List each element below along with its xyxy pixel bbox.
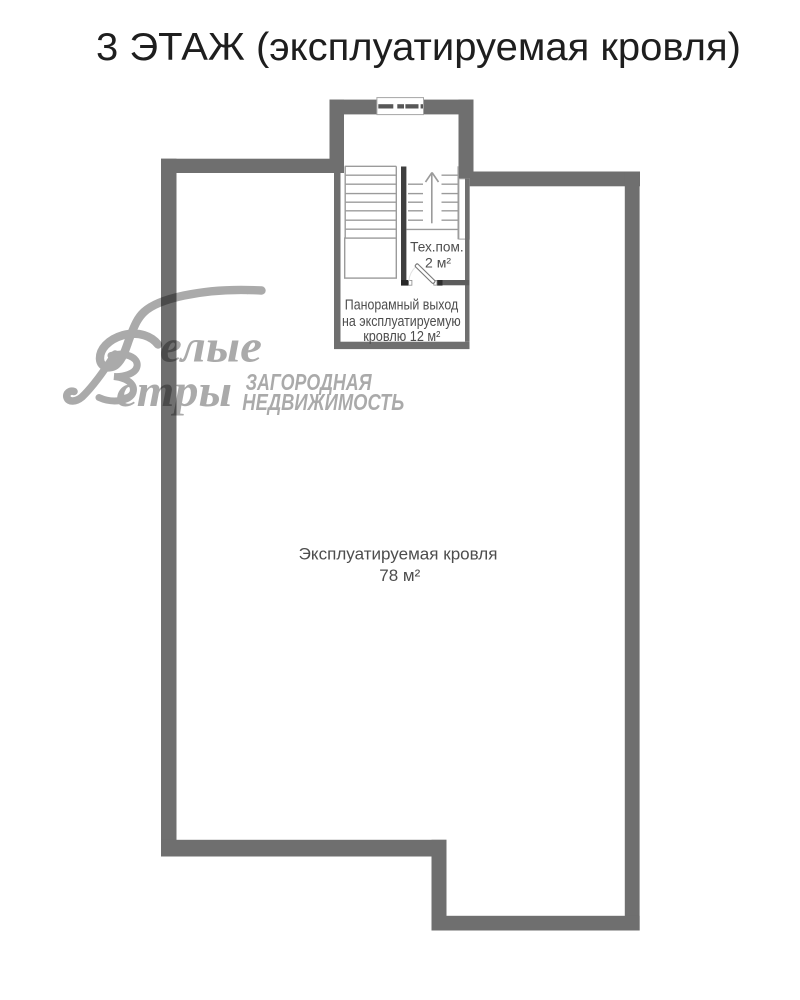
svg-text:етры: етры: [116, 365, 232, 416]
svg-text:кровлю 12 м²: кровлю 12 м²: [363, 329, 440, 345]
svg-text:Эксплуатируемая кровля: Эксплуатируемая кровля: [299, 546, 498, 564]
svg-text:Панорамный выход: Панорамный выход: [345, 298, 459, 314]
svg-text:на эксплуатируемую: на эксплуатируемую: [342, 314, 461, 330]
svg-text:3 ЭТАЖ (эксплуатируемая кровля: 3 ЭТАЖ (эксплуатируемая кровля): [96, 26, 741, 69]
svg-text:78 м²: 78 м²: [379, 567, 421, 585]
svg-text:2 м²: 2 м²: [425, 255, 451, 271]
svg-text:Тех.пом.: Тех.пом.: [410, 238, 464, 254]
svg-text:НЕДВИЖИМОСТЬ: НЕДВИЖИМОСТЬ: [242, 389, 404, 415]
svg-text:елые: елые: [160, 321, 262, 372]
